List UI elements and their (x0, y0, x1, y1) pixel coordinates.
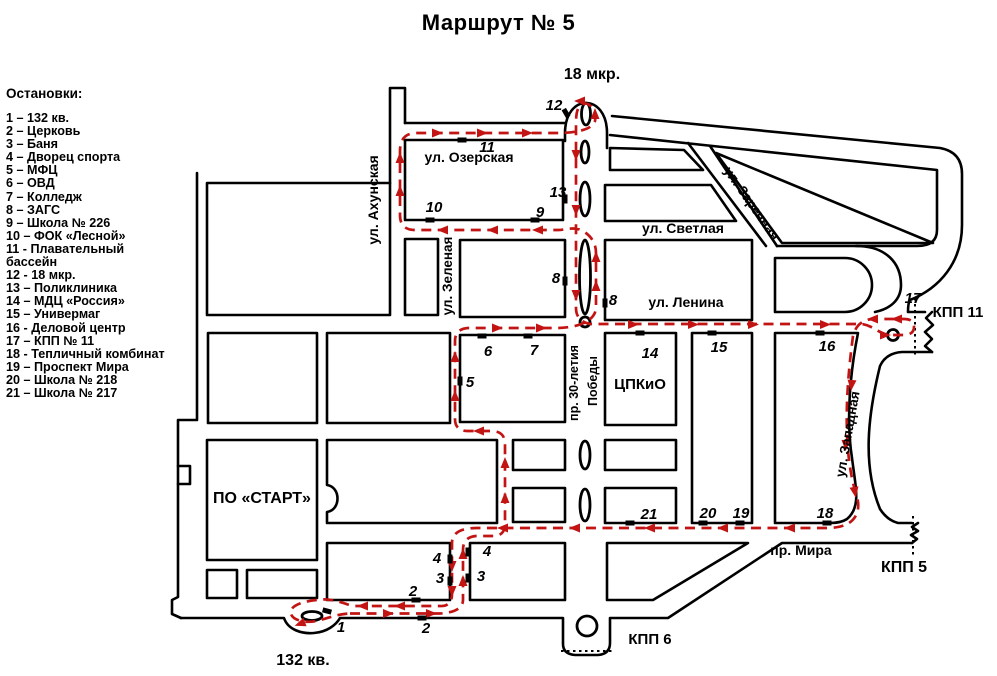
street-label: пр. Мира (770, 542, 832, 558)
bus-stop-tick (448, 555, 453, 564)
stop-number-label: 13 (550, 184, 567, 201)
route-arrow-icon (717, 524, 728, 533)
street-label: КПП 6 (628, 631, 671, 648)
street-label: пр. 30-летия (567, 345, 581, 421)
street-label: ул. Светлая (642, 220, 724, 236)
bus-stop-tick (322, 607, 332, 614)
street-label: ПО «СТАРТ» (213, 490, 311, 507)
street-label: ул. Зеленая (440, 237, 455, 316)
street-label: ул. Ахунская (365, 155, 381, 244)
route-arrow-icon (473, 427, 484, 436)
route-arrow-icon (891, 315, 902, 324)
bus-stop-tick (524, 334, 533, 339)
stop-number-label: 9 (536, 204, 545, 221)
route-arrow-icon (383, 609, 394, 618)
route-arrow-icon (536, 324, 547, 333)
stop-number-label: 12 (546, 97, 563, 114)
stop-number-label: 16 (819, 338, 836, 355)
stop-number-label: 3 (477, 568, 486, 585)
route-arrow-icon (784, 524, 795, 533)
bus-route-map-page: Маршрут № 5 Остановки: 1 – 132 кв.2 – Це… (0, 0, 997, 676)
bus-stop-tick (448, 577, 453, 586)
route-arrow-icon (426, 609, 437, 618)
route-arrow-icon (644, 524, 655, 533)
stop-number-label: 2 (408, 583, 418, 600)
stop-number-label: 6 (484, 343, 493, 360)
street-label: КПП 5 (881, 559, 927, 576)
bus-stop-tick (478, 334, 487, 339)
bus-stop-tick (563, 277, 568, 286)
route-arrow-icon (522, 129, 533, 138)
route-arrow-icon (628, 320, 639, 329)
bus-stop-tick (626, 521, 635, 526)
stop-number-label: 14 (642, 345, 659, 362)
route-arrow-icon (437, 226, 448, 235)
stop-number-label: 1 (337, 619, 345, 636)
stop-number-label: 5 (466, 374, 475, 391)
stop-number-label: 2 (421, 620, 431, 637)
stop-number-label: 7 (530, 342, 539, 359)
route-arrow-icon (748, 320, 759, 329)
route-arrow-icon (820, 320, 831, 329)
street-label: 18 мкр. (564, 66, 620, 83)
street-label: КПП 11 (933, 304, 984, 321)
street-label: Победы (586, 356, 600, 406)
bus-stop-tick (636, 331, 645, 336)
stop-number-label: 15 (711, 339, 728, 356)
street-label: ЦПКиО (614, 376, 666, 393)
street-label: ул. Ленина (648, 294, 723, 310)
stop-number-label: 3 (436, 570, 445, 587)
route-arrow-icon (592, 251, 601, 262)
route-arrow-icon (867, 315, 878, 324)
bus-stop-tick (466, 574, 471, 583)
route-arrow-icon (569, 524, 580, 533)
bus-stop-tick (466, 548, 471, 557)
bus-stop-tick (458, 377, 463, 386)
stop-number-label: 4 (432, 550, 442, 567)
route-arrow-icon (451, 390, 460, 401)
bus-stop-tick (603, 299, 608, 308)
route-arrow-icon (501, 492, 510, 503)
stop-number-label: 21 (640, 506, 658, 523)
route-arrow-icon (396, 185, 405, 196)
stop-number-label: 8 (609, 292, 618, 309)
street-label: 132 кв. (276, 652, 329, 669)
kpp6-island (577, 616, 597, 636)
route-arrow-icon (501, 457, 510, 468)
route-arrow-icon (477, 129, 488, 138)
route-arrow-icon (396, 152, 405, 163)
bus-stop-tick (816, 331, 825, 336)
route-arrow-icon (572, 150, 581, 161)
stop-number-label: 18 (817, 505, 834, 522)
stop-number-label: 17 (905, 290, 922, 307)
stop-number-label: 8 (552, 270, 561, 287)
stop-number-label: 11 (479, 139, 495, 156)
route-arrow-icon (432, 129, 443, 138)
stop-number-label: 10 (426, 199, 443, 216)
route-arrow-icon (357, 602, 368, 611)
stop-number-label: 20 (699, 505, 717, 522)
route-arrow-icon (688, 320, 699, 329)
route-arrow-icon (492, 324, 503, 333)
bus-stop-tick (426, 218, 435, 223)
route-map: ул. Ахунскаяул. Озерскаяул. Зеленаяул. С… (0, 0, 997, 676)
route-arrow-icon (394, 602, 405, 611)
street-label: ул. Озерская (424, 149, 513, 165)
bus-stop-tick (458, 138, 467, 143)
stop-number-label: 4 (482, 543, 492, 560)
bus-stop-tick (708, 331, 717, 336)
route-arrow-icon (487, 226, 498, 235)
stop-number-label: 19 (733, 505, 750, 522)
route-arrow-icon (592, 280, 601, 291)
route-arrow-icon (451, 351, 460, 362)
route-arrow-icon (572, 205, 581, 216)
route-arrow-icon (532, 226, 543, 235)
